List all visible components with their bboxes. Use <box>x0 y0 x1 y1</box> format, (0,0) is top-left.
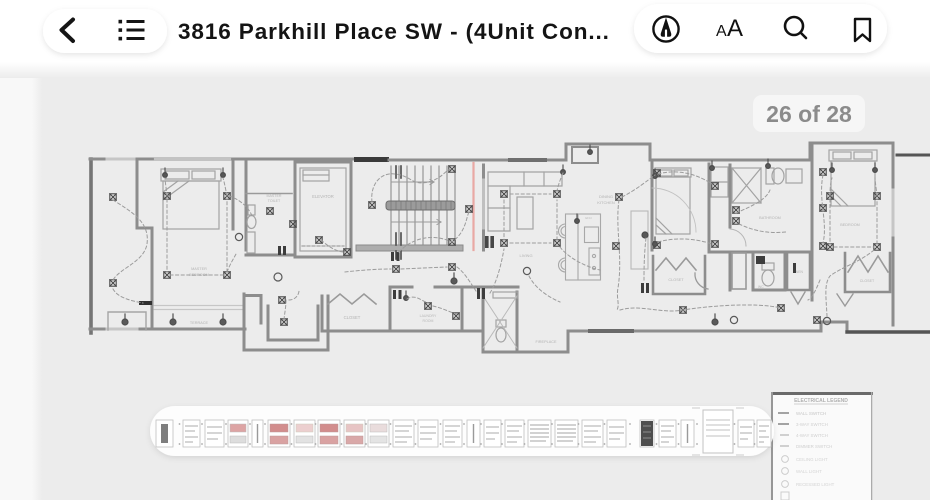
svg-text:KITCHEN: KITCHEN <box>597 200 615 205</box>
svg-text:BATHROOM: BATHROOM <box>759 216 781 220</box>
svg-text:ELECTRICAL LEGEND: ELECTRICAL LEGEND <box>794 398 848 404</box>
svg-text:WC: WC <box>758 285 764 289</box>
svg-text:TOILET: TOILET <box>268 199 281 203</box>
svg-text:3-WAY SWITCH: 3-WAY SWITCH <box>796 422 828 427</box>
svg-text:CLOSET: CLOSET <box>668 278 684 282</box>
svg-text:LAUNDRY: LAUNDRY <box>420 314 437 318</box>
svg-text:A: A <box>727 15 743 42</box>
svg-text:DIMMER SWITCH: DIMMER SWITCH <box>796 444 832 449</box>
svg-text:DINING: DINING <box>599 194 613 199</box>
svg-text:3816 Parkhill Place SW - (4Uni: 3816 Parkhill Place SW - (4Unit Con... <box>178 19 610 44</box>
svg-text:A: A <box>716 23 727 40</box>
svg-text:ROOM: ROOM <box>423 319 434 323</box>
svg-text:4-WAY SWITCH: 4-WAY SWITCH <box>796 433 828 438</box>
svg-text:CLOSET: CLOSET <box>860 279 875 283</box>
svg-text:CEILING LIGHT: CEILING LIGHT <box>796 457 828 462</box>
svg-text:26 of 28: 26 of 28 <box>766 101 852 127</box>
svg-text:LIVING: LIVING <box>519 253 532 258</box>
svg-text:RECESSED LIGHT: RECESSED LIGHT <box>796 482 835 487</box>
svg-text:FIREPLACE: FIREPLACE <box>535 340 557 344</box>
svg-text:CLOSET: CLOSET <box>344 315 361 320</box>
svg-text:ELEVATOR: ELEVATOR <box>312 194 334 199</box>
svg-text:WALL SWITCH: WALL SWITCH <box>796 411 826 416</box>
svg-text:MASTER: MASTER <box>191 267 207 271</box>
svg-text:BEDROOM: BEDROOM <box>840 223 860 227</box>
svg-text:TERRACE: TERRACE <box>190 321 209 325</box>
svg-text:GFCI: GFCI <box>585 216 592 220</box>
svg-text:MASTER: MASTER <box>267 194 282 198</box>
svg-text:WALL LIGHT: WALL LIGHT <box>796 469 822 474</box>
